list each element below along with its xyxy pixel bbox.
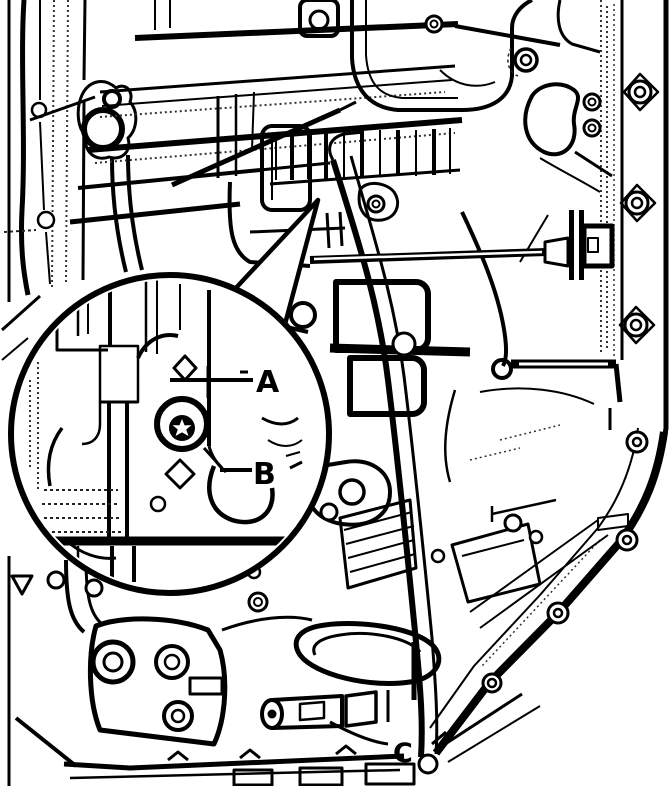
technical-illustration-page: A B C	[0, 0, 672, 786]
torx-bolt-magnified	[157, 399, 207, 449]
mid-right-pocket	[432, 388, 628, 628]
flange-bolt-lower	[620, 307, 654, 343]
mount-bolt-right	[156, 646, 188, 678]
ferrule	[545, 238, 568, 266]
mount-bolt-large	[93, 642, 133, 682]
flange-bolt-top	[624, 74, 658, 110]
kidney-port	[525, 84, 578, 154]
right-flange-rail	[430, 0, 666, 754]
bottom-pan-rail	[64, 746, 414, 785]
flange-bolt-middle	[621, 185, 655, 221]
triangle-marker	[12, 576, 32, 594]
engine-case-line-drawing: A B C	[0, 0, 672, 786]
vertical-rib-row	[270, 128, 460, 184]
diagonal-edge-bolts	[483, 432, 647, 692]
bell-housing-sweep	[330, 132, 437, 757]
rod-plug-assembly	[310, 210, 612, 280]
mount-bolt-lower	[164, 702, 192, 730]
flange-disc	[569, 210, 574, 280]
callout-label-a: A	[256, 365, 280, 400]
case-label-c: C	[393, 738, 413, 769]
magnified-detail-callout: A B	[11, 275, 329, 593]
rail-bolt-lower	[38, 212, 54, 228]
upper-bolt	[515, 49, 537, 71]
callout-label-b: B	[253, 457, 276, 492]
